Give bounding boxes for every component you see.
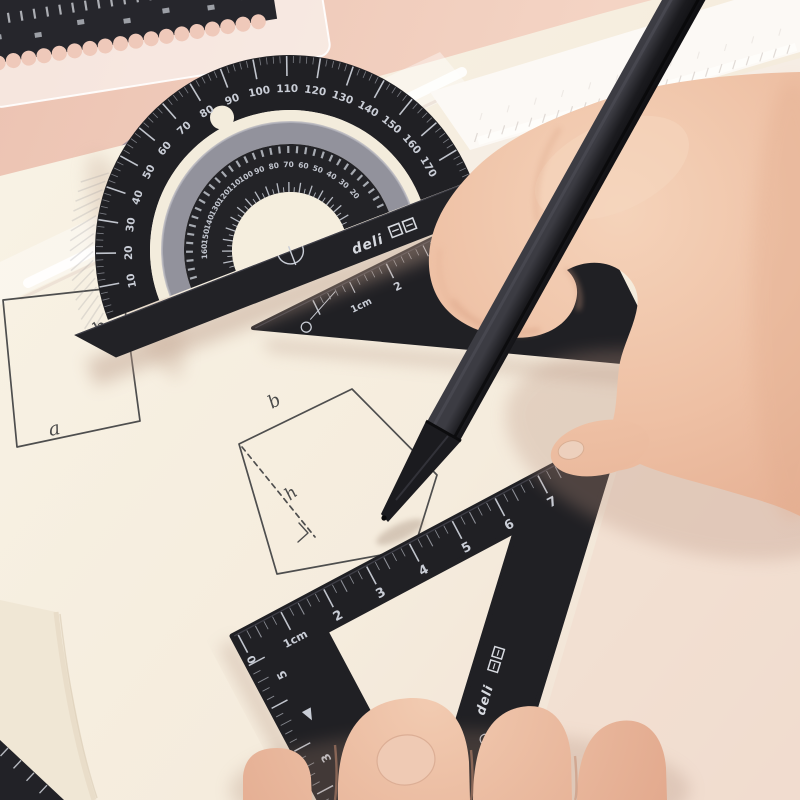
pen-tip (381, 515, 386, 520)
protractor-inner-degree-label: 60 (298, 160, 310, 171)
protractor-degree-label: 20 (123, 245, 135, 260)
stationery-photo: b a b h 1cm23 10203040506070809010011012… (0, 0, 800, 800)
protractor-degree-label: 110 (276, 83, 298, 95)
protractor-inner-degree-label: 160 (200, 244, 209, 260)
protractor-degree-label: 30 (124, 217, 138, 233)
photo-canvas: b a b h 1cm23 10203040506070809010011012… (0, 0, 800, 800)
protractor-inner-degree-label: 70 (283, 160, 294, 169)
